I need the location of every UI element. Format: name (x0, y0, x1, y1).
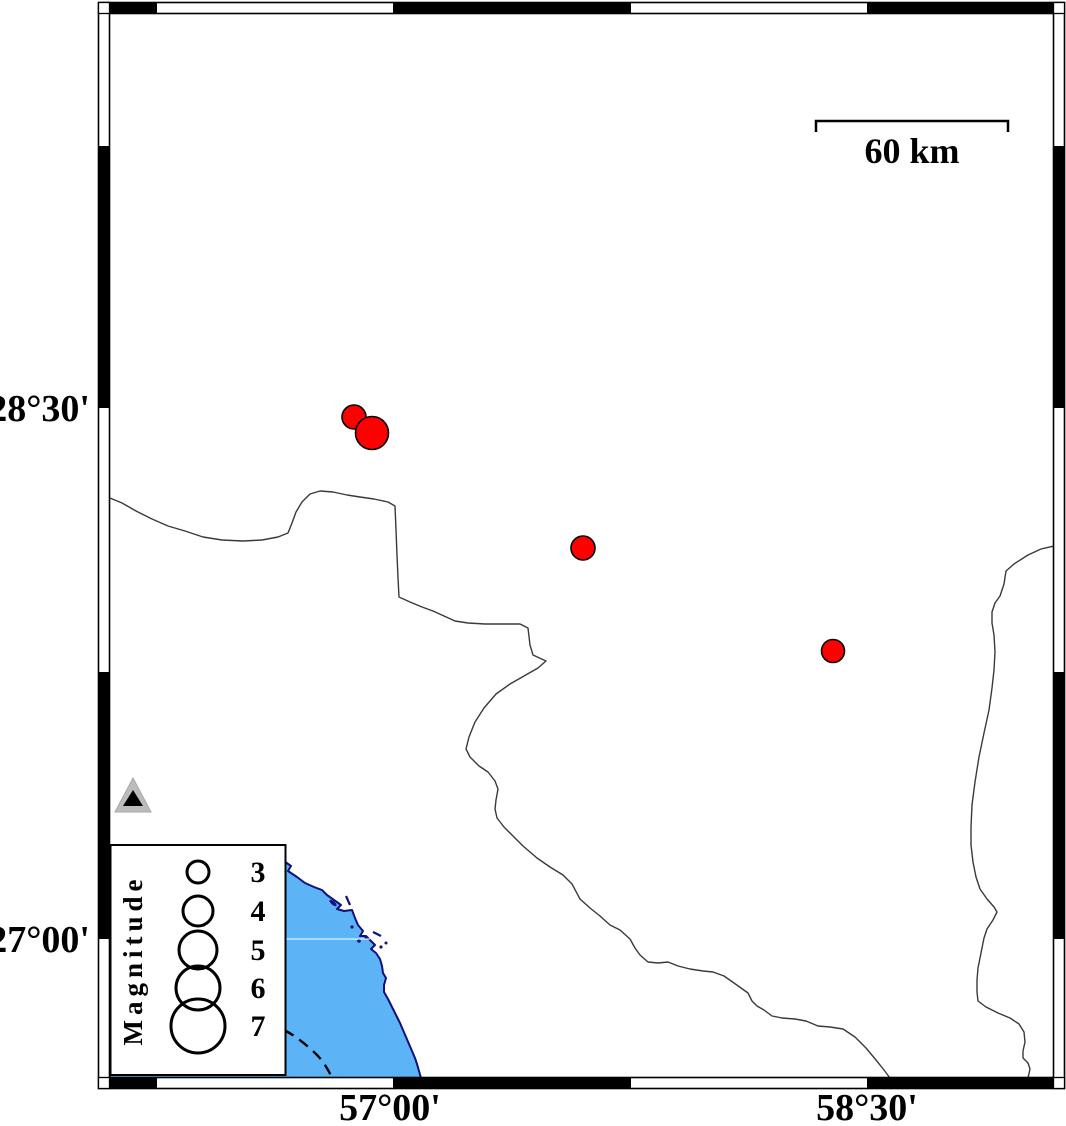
scale-bar-label: 60 km (864, 131, 959, 171)
magnitude-legend: Magnitude 34567 (111, 845, 286, 1075)
legend-value-3: 3 (251, 856, 266, 889)
lon-label-5700: 57°00' (339, 1087, 441, 1126)
lat-label-2830: 28°30' (0, 388, 90, 430)
legend-value-5: 5 (251, 934, 266, 967)
legend-title: Magnitude (118, 874, 148, 1045)
epicenter-3 (822, 640, 845, 663)
lat-label-2700: 27°00' (0, 919, 90, 961)
epicenter-2 (571, 536, 595, 560)
map-figure: Magnitude 34567 60 km 28°30' 27°00' (0, 0, 1066, 1126)
map-svg: Magnitude 34567 60 km 28°30' 27°00' (0, 0, 1066, 1126)
legend-value-4: 4 (251, 895, 266, 928)
legend-value-7: 7 (251, 1010, 266, 1043)
epicenter-1 (356, 417, 389, 450)
legend-labels: 34567 (251, 856, 266, 1043)
legend-value-6: 6 (251, 972, 266, 1005)
lon-label-5830: 58°30' (816, 1087, 918, 1126)
